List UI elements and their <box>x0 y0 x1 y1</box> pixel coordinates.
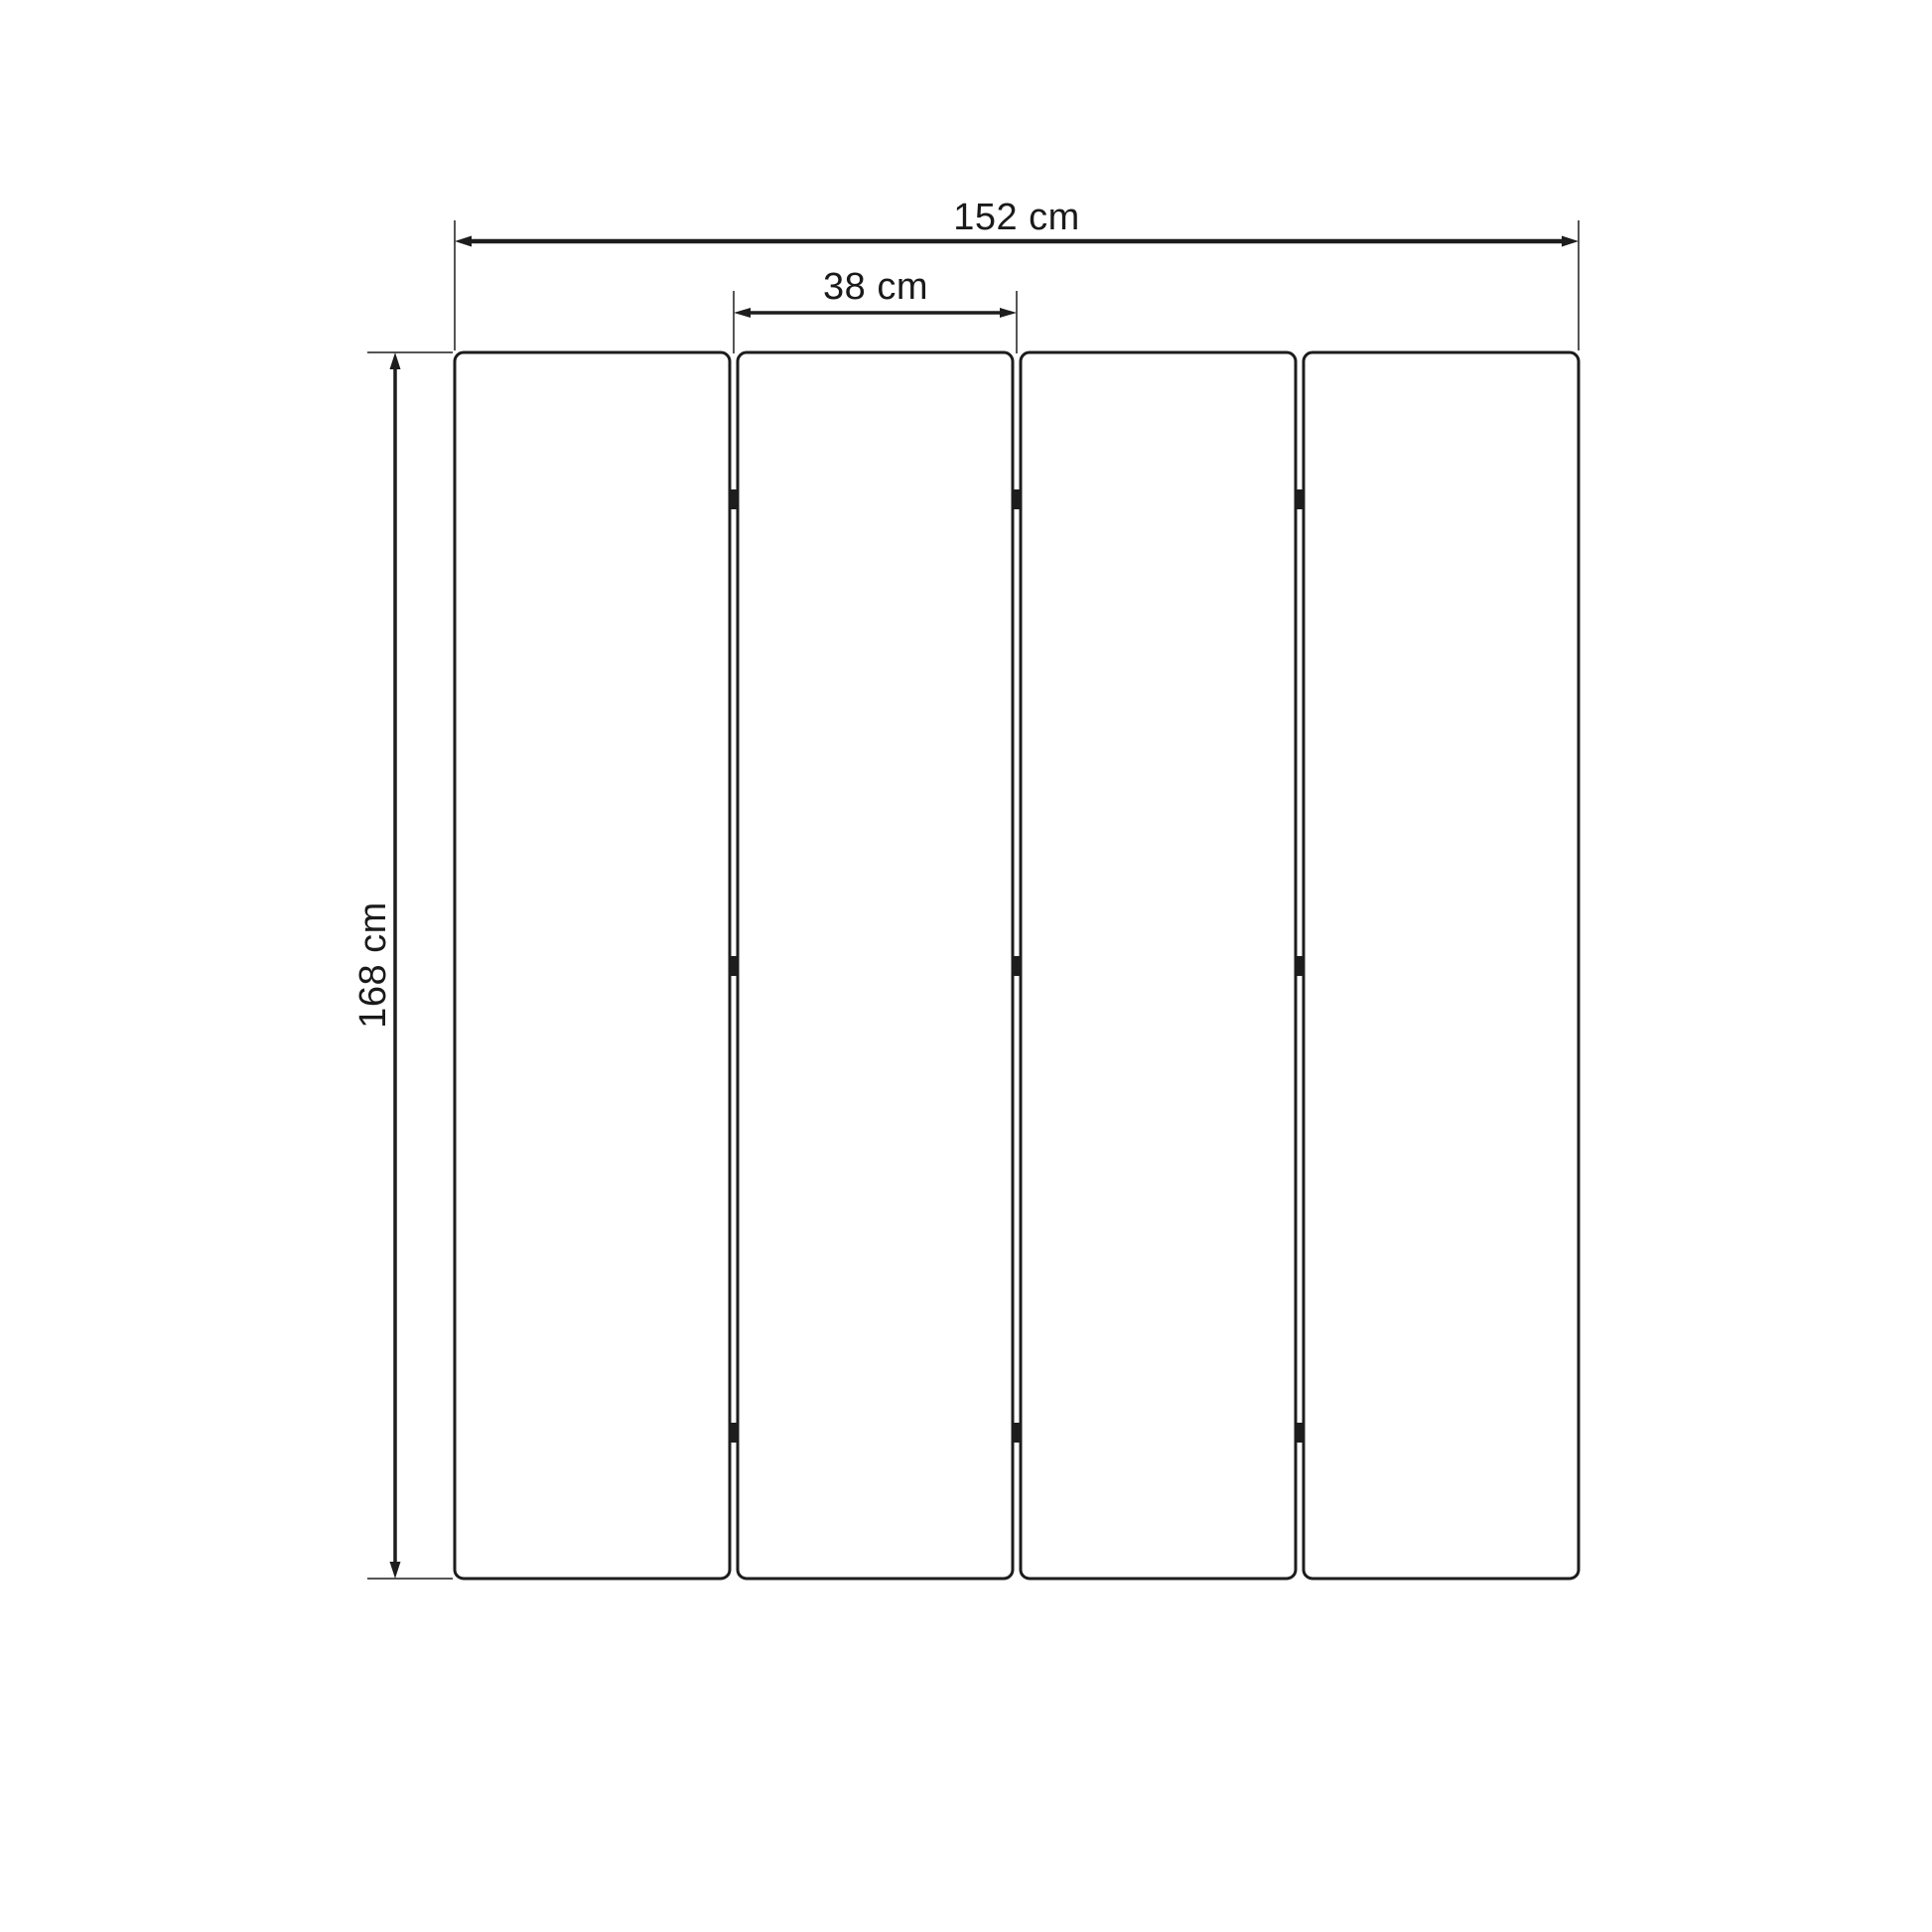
arrow-right-icon <box>1562 236 1579 247</box>
arrow-right-icon <box>1000 308 1017 318</box>
hinge-joint3-middle <box>1295 956 1306 976</box>
arrow-left-icon <box>734 308 751 318</box>
panel-2 <box>738 352 1013 1579</box>
folding-screen-dimension-diagram: 152 cm 38 cm 168 cm <box>0 0 1932 1932</box>
hinge-joint2-middle <box>1012 956 1023 976</box>
total-width-label: 152 cm <box>953 197 1080 238</box>
height-label: 168 cm <box>352 901 394 1029</box>
hinge-joint3-top <box>1295 489 1306 509</box>
arrow-left-icon <box>455 236 472 247</box>
panel-width-dimension: 38 cm <box>734 266 1017 353</box>
hinge-joint3-bottom <box>1295 1423 1306 1443</box>
hinge-joint2-bottom <box>1012 1423 1023 1443</box>
panel-width-label: 38 cm <box>823 266 928 308</box>
hinge-joint1-middle <box>729 956 740 976</box>
hinge-joint1-bottom <box>729 1423 740 1443</box>
hinge-joint2-top <box>1012 489 1023 509</box>
height-dimension: 168 cm <box>352 352 453 1579</box>
arrow-down-icon <box>390 1562 401 1579</box>
panel-4 <box>1304 352 1579 1579</box>
panel-3 <box>1021 352 1296 1579</box>
panel-1 <box>455 352 730 1579</box>
hinge-joint1-top <box>729 489 740 509</box>
arrow-up-icon <box>390 352 401 369</box>
diagram-canvas: 152 cm 38 cm 168 cm <box>0 0 1932 1932</box>
